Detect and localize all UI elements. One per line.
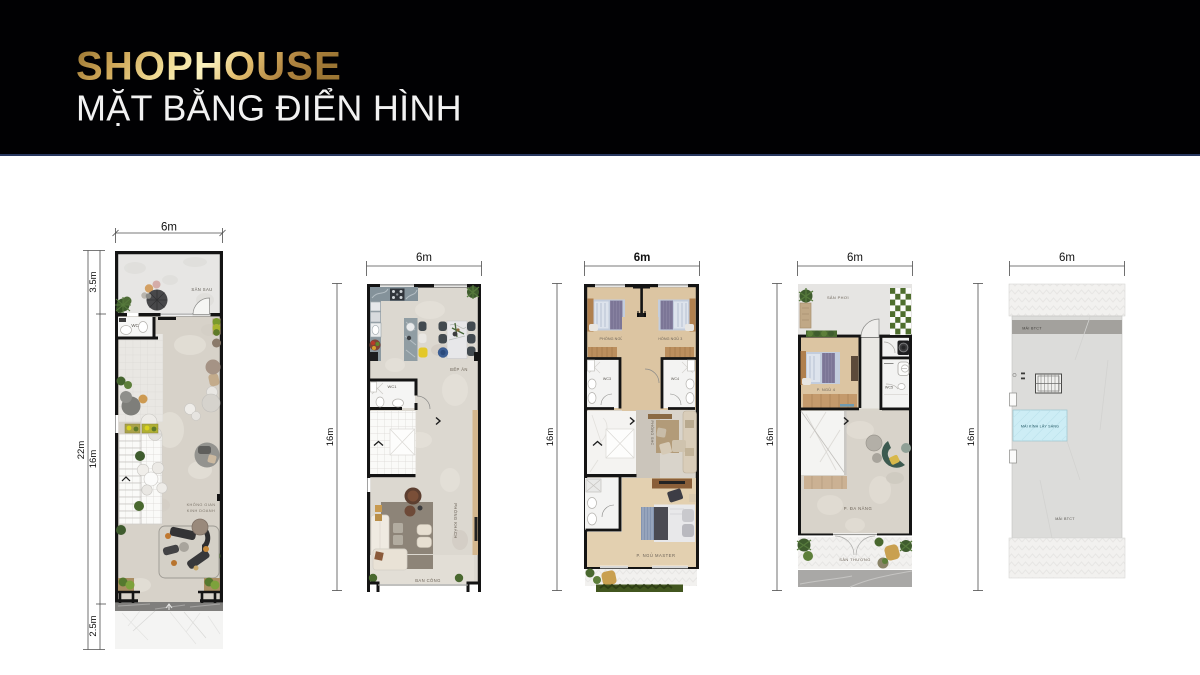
svg-text:KINH DOANH: KINH DOANH: [187, 508, 215, 513]
svg-text:SÂN THƯỢNG: SÂN THƯỢNG: [839, 557, 870, 562]
svg-text:P. NGỦ 4: P. NGỦ 4: [817, 387, 836, 392]
svg-text:16m: 16m: [765, 428, 776, 447]
svg-text:PHÒNG SHC: PHÒNG SHC: [650, 420, 655, 445]
svg-text:16m: 16m: [325, 428, 336, 447]
svg-text:MẶT BẰNG ĐIỂN HÌNH: MẶT BẰNG ĐIỂN HÌNH: [76, 87, 462, 129]
svg-text:WC: WC: [131, 323, 138, 328]
svg-text:6m: 6m: [1059, 252, 1075, 264]
svg-text:P. ĐA NĂNG: P. ĐA NĂNG: [844, 506, 872, 511]
svg-text:16m: 16m: [545, 428, 556, 447]
svg-text:WC5: WC5: [885, 386, 893, 390]
svg-text:PHÒNG NGỦ 3: PHÒNG NGỦ 3: [656, 336, 683, 341]
svg-text:SÂN SAU: SÂN SAU: [191, 287, 212, 292]
svg-text:6m: 6m: [416, 252, 432, 264]
svg-text:16m: 16m: [966, 428, 977, 447]
svg-text:BẾP ĂN: BẾP ĂN: [450, 367, 468, 372]
svg-text:6m: 6m: [847, 252, 863, 264]
svg-text:MÁI KÍNH LẤY SÁNG: MÁI KÍNH LẤY SÁNG: [1021, 425, 1059, 429]
svg-text:SÂN PHƠI: SÂN PHƠI: [827, 295, 849, 300]
svg-text:MÁI BTCT: MÁI BTCT: [1022, 327, 1042, 331]
svg-text:3.5m: 3.5m: [88, 271, 99, 292]
svg-text:6m: 6m: [634, 252, 651, 264]
svg-text:WC4: WC4: [671, 377, 679, 381]
svg-text:MÁI BTCT: MÁI BTCT: [1055, 517, 1075, 521]
svg-text:22m: 22m: [76, 441, 87, 460]
svg-text:6m: 6m: [161, 222, 177, 234]
svg-text:2.5m: 2.5m: [88, 615, 99, 636]
svg-text:KHÔNG GIAN: KHÔNG GIAN: [187, 502, 216, 507]
svg-text:WC1: WC1: [388, 384, 398, 389]
svg-text:P. NGỦ MASTER: P. NGỦ MASTER: [637, 553, 676, 558]
svg-text:BAN CÔNG: BAN CÔNG: [415, 578, 441, 583]
svg-text:WC3: WC3: [603, 377, 611, 381]
svg-text:PHÒNG KHÁCH: PHÒNG KHÁCH: [453, 503, 458, 539]
svg-text:SHOPHOUSE: SHOPHOUSE: [76, 45, 342, 89]
svg-text:16m: 16m: [88, 450, 99, 469]
